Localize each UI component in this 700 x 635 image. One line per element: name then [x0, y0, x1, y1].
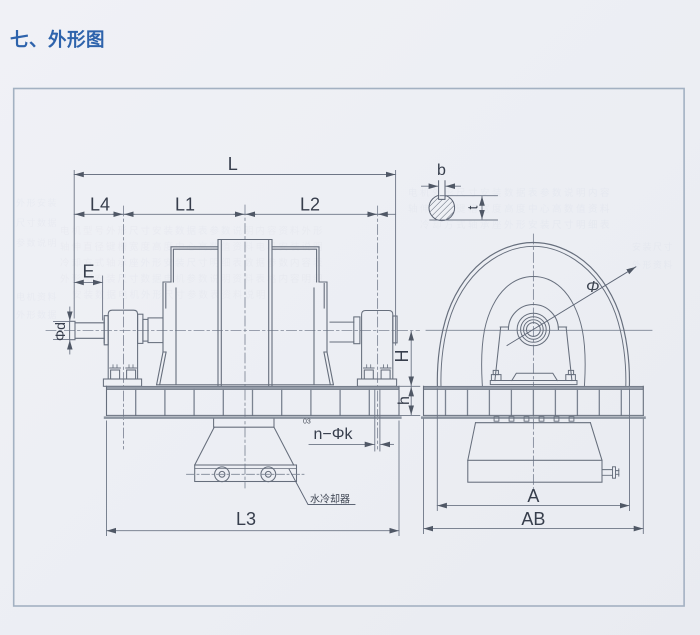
svg-text:h: h [396, 396, 413, 405]
svg-text:Φ: Φ [586, 279, 599, 296]
svg-text:电机资料: 电机资料 [16, 291, 58, 302]
svg-text:b: b [437, 162, 446, 179]
svg-text:L3: L3 [236, 509, 256, 529]
svg-text:n−Φk: n−Φk [313, 426, 353, 443]
svg-text:03: 03 [303, 419, 311, 426]
svg-text:安装数据电机外形尺寸参数表资料说明: 安装数据电机外形尺寸参数表资料说明 [72, 289, 268, 301]
svg-text:L2: L2 [300, 195, 320, 215]
svg-text:A: A [527, 486, 539, 506]
svg-text:冷却方式轴承座外形安装尺寸明细表: 冷却方式轴承座外形安装尺寸明细表 [420, 219, 612, 231]
svg-text:参数说明: 参数说明 [16, 237, 58, 248]
svg-text:E: E [82, 262, 94, 282]
svg-text:水冷却器: 水冷却器 [310, 493, 350, 506]
svg-text:外形安装: 外形安装 [16, 197, 58, 208]
svg-text:电机型号外形尺寸安装数据表参数说明内容资料外形: 电机型号外形尺寸安装数据表参数说明内容资料外形 [60, 225, 325, 237]
svg-text:H: H [392, 350, 412, 363]
svg-text:安装尺寸: 安装尺寸 [632, 241, 674, 252]
svg-text:Φd: Φd [52, 322, 68, 341]
svg-text:冷却方式轴承座外形安装尺寸明细表数据参数内容表: 冷却方式轴承座外形安装尺寸明细表数据参数内容表 [60, 257, 325, 269]
svg-text:L4: L4 [90, 195, 110, 215]
svg-text:外形图安装尺寸数据电机参数说明资料表格内容明细: 外形图安装尺寸数据电机参数说明资料表格内容明细 [60, 273, 325, 285]
svg-text:七、外形图: 七、外形图 [10, 29, 105, 50]
svg-text:t: t [465, 205, 481, 209]
svg-text:外形资料: 外形资料 [632, 259, 674, 270]
svg-text:AB: AB [521, 509, 545, 529]
svg-text:L1: L1 [175, 195, 195, 215]
svg-text:尺寸数据: 尺寸数据 [16, 217, 58, 228]
svg-text:外形数据: 外形数据 [16, 309, 58, 320]
svg-text:L: L [228, 154, 238, 174]
